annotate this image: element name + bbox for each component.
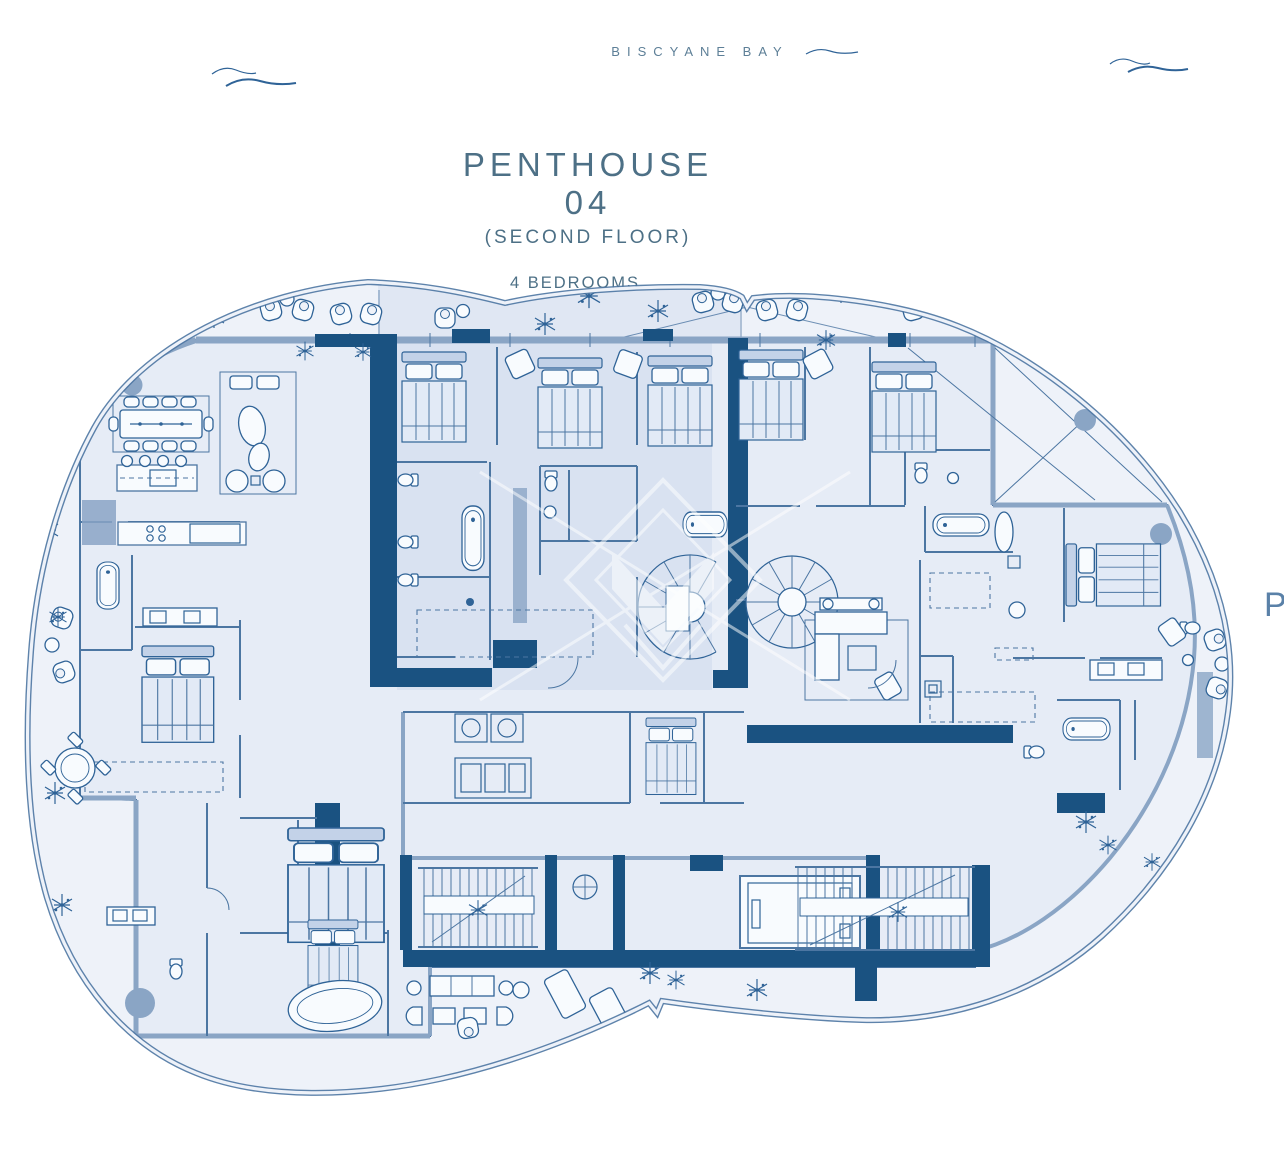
lobby-window bbox=[573, 875, 597, 899]
floor-plan bbox=[0, 0, 1284, 1174]
